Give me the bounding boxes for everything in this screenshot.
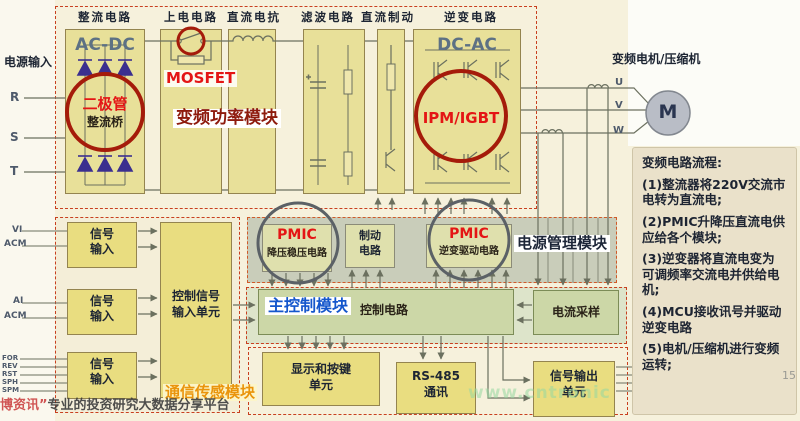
terminal-acm2: ACM <box>4 312 27 322</box>
col-label-filter: 滤波电路 <box>297 11 359 24</box>
terminal-acm1: ACM <box>4 240 27 250</box>
col-label-inverter: 逆变电路 <box>441 11 501 24</box>
control-circuit-label: 控制电路 <box>360 304 408 317</box>
site-watermark-text: 专业的投资研究大数据分享平台 <box>48 398 230 413</box>
current-sampling-label: 电流采样 <box>533 306 619 319</box>
pmic-buck-chip: PMIC <box>262 228 332 243</box>
motor-symbol: M <box>646 102 690 123</box>
col-label-dc-reactor: 直流电抗 <box>226 11 282 24</box>
col-label-dc-brake: 直流制动 <box>361 11 409 24</box>
signal-input-2-line2: 输入 <box>67 310 137 323</box>
rectifier-bridge-text: 整流桥 <box>67 116 143 129</box>
rs485-line2: 通讯 <box>396 386 476 399</box>
rs485-line1: RS-485 <box>396 370 476 383</box>
flow-step-4: (4)MCU接收讯号并驱动逆变电路 <box>642 304 787 335</box>
flow-step-5: (5)电机/压缩机进行变频运转; <box>642 341 787 372</box>
flow-step-3: (3)逆变器将直流电变为可调频率交流电并供给电机; <box>642 251 787 298</box>
brake-line2: 电路 <box>345 245 395 257</box>
phase-s-label: S <box>10 131 19 144</box>
green-watermark: www.cntronic <box>468 383 611 403</box>
site-watermark-red: 博资讯” <box>0 398 48 413</box>
flow-panel-title: 变频电路流程: <box>642 155 787 171</box>
phase-r-label: R <box>10 91 19 104</box>
phase-u-label: U <box>615 77 623 88</box>
mosfet-label: MOSFET <box>164 70 237 87</box>
signal-input-3-line1: 信号 <box>67 358 137 371</box>
corner-watermark: 15 <box>782 369 796 382</box>
acdc-label: AC-DC <box>65 36 145 55</box>
signal-output-line1: 信号输出 <box>533 370 615 383</box>
signal-input-3-line2: 输入 <box>67 373 137 386</box>
terminal-ai: AI <box>13 297 23 307</box>
signal-input-2-line1: 信号 <box>67 295 137 308</box>
flow-step-2: (2)PMIC升降压直流电供应给各个模块; <box>642 214 787 245</box>
brake-line1: 制动 <box>345 230 395 242</box>
power-mgmt-title: 电源管理模块 <box>514 235 610 252</box>
flow-panel: 变频电路流程: (1)整流器将220V交流市电转为直流电; (2)PMIC升降压… <box>632 147 797 415</box>
display-keys-line2: 单元 <box>262 379 380 392</box>
pmic-drive-chip: PMIC <box>426 227 512 242</box>
phase-v-label: V <box>615 100 623 111</box>
pmic-drive-desc: 逆变驱动电路 <box>424 246 514 257</box>
motor-label: 变频电机/压缩机 <box>612 53 700 66</box>
vfd-block-diagram: { "top_module": { "title": "变频功率模块", "co… <box>0 0 800 421</box>
col-label-rectifier: 整流电路 <box>65 11 145 24</box>
signal-input-1-line1: 信号 <box>67 228 137 241</box>
ipm-igbt-label: IPM/IGBT <box>415 110 507 127</box>
switch-callout-circle <box>178 28 204 54</box>
site-watermark: 博资讯”专业的投资研究大数据分享平台 <box>0 394 230 413</box>
power-module-title: 变频功率模块 <box>173 109 281 128</box>
ctrl-input-line1: 控制信号 <box>158 290 234 303</box>
dcac-label: DC-AC <box>422 36 512 55</box>
diode-callout-text: 二极管 <box>67 96 143 113</box>
ctrl-input-line2: 输入单元 <box>158 306 234 319</box>
terminal-vi: VI <box>12 226 22 236</box>
col-label-power-on: 上电电路 <box>160 11 222 24</box>
display-keys-line1: 显示和按键 <box>262 363 380 376</box>
phase-w-label: W <box>613 125 624 136</box>
flow-step-1: (1)整流器将220V交流市电转为直流电; <box>642 177 787 208</box>
pmic-buck-desc: 降压稳压电路 <box>254 248 340 259</box>
phase-t-label: T <box>10 165 18 178</box>
power-input-label: 电源输入 <box>4 56 52 69</box>
signal-input-1-line2: 输入 <box>67 243 137 256</box>
main-control-title: 主控制模块 <box>265 297 351 315</box>
